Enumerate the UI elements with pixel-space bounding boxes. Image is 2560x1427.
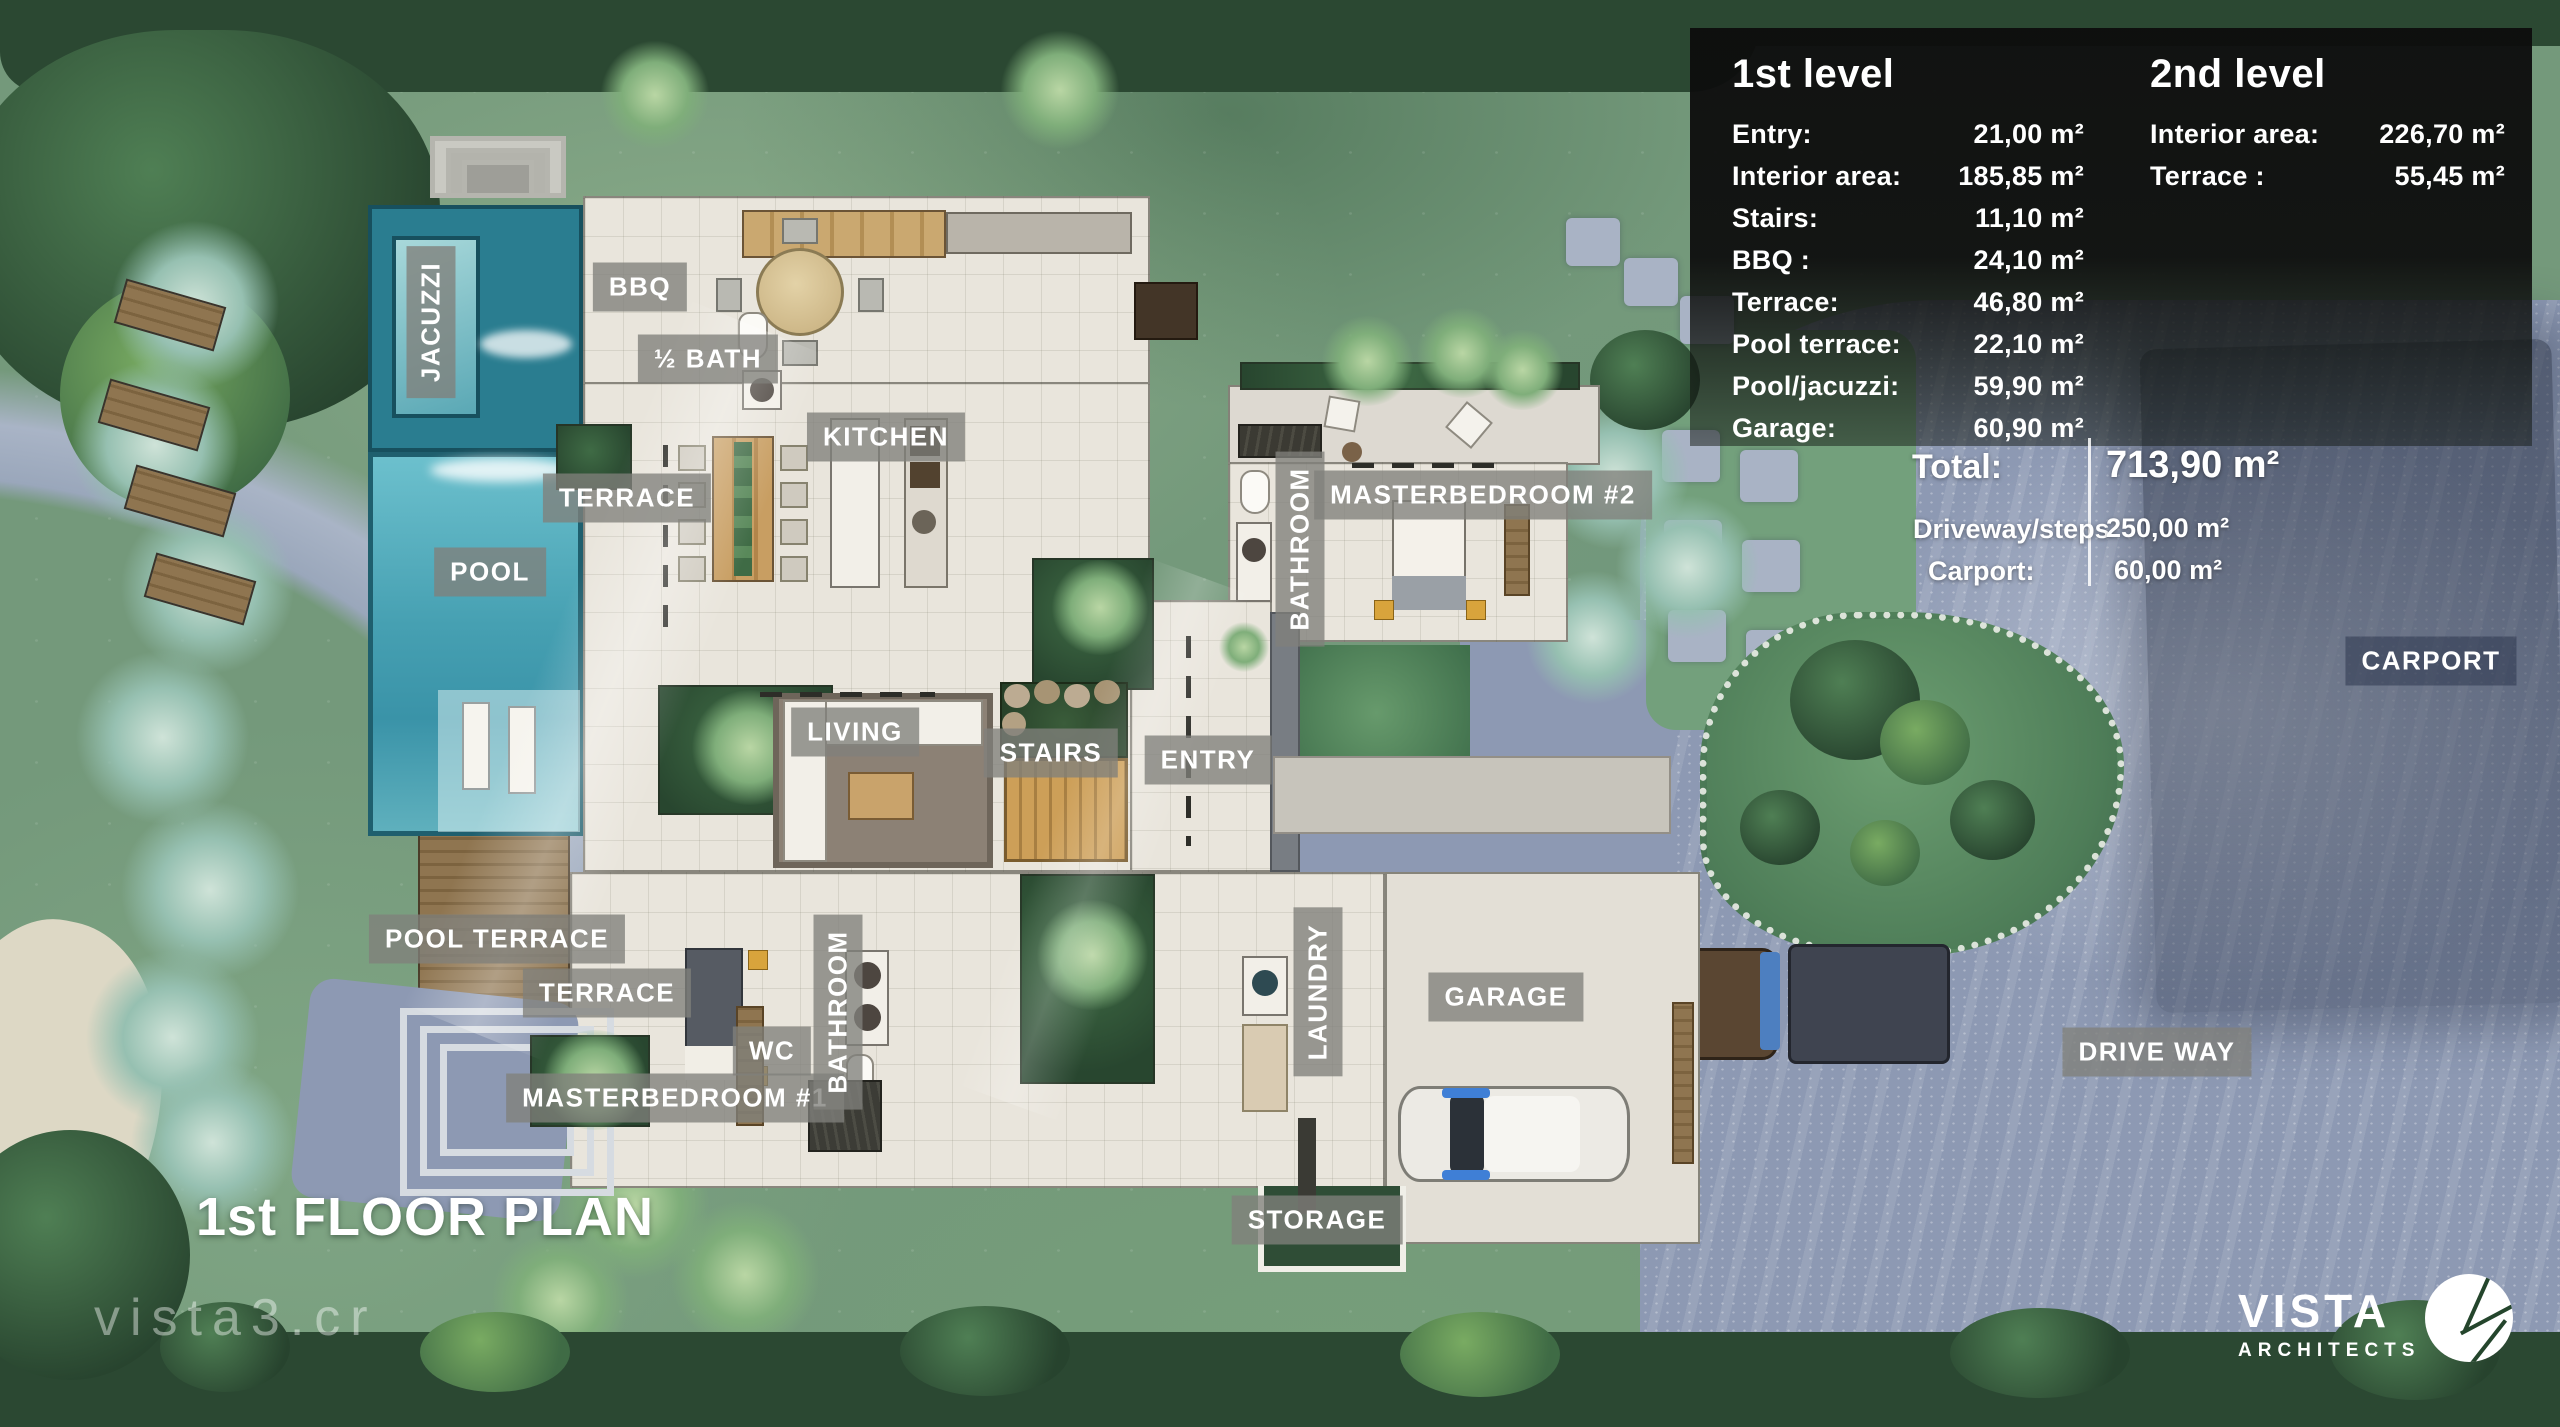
terrace-chair	[1323, 395, 1360, 432]
rock	[1064, 684, 1090, 708]
area-label: Pool/jacuzzi:	[1732, 371, 1899, 402]
area-row: Entry:21,00 m²	[1732, 113, 2084, 155]
rock	[1034, 680, 1060, 704]
room-label-pool-terrace: POOL TERRACE	[369, 915, 625, 964]
area-value: 22,10 m²	[1974, 329, 2084, 360]
hedge-bush	[1400, 1312, 1560, 1397]
area-label: Pool terrace:	[1732, 329, 1901, 360]
room-label-kitchen: KITCHEN	[807, 413, 965, 462]
area-row: Stairs:11,10 m²	[1732, 197, 2084, 239]
round-dining-table	[756, 248, 844, 336]
room-label-drive-way: DRIVE WAY	[2062, 1028, 2251, 1077]
hedge-bush	[1950, 1308, 2130, 1398]
area-value: 46,80 m²	[1974, 287, 2084, 318]
area-row: Terrace :55,45 m²	[2150, 155, 2505, 197]
side-table	[1342, 442, 1362, 462]
area-label: Interior area:	[2150, 119, 2319, 150]
stepping-paver	[1566, 218, 1620, 266]
chair	[780, 556, 808, 582]
total-value: 713,90 m²	[2106, 444, 2279, 487]
room-label-masterbedroom-2: MASTERBEDROOM #2	[1314, 471, 1652, 520]
room-label-half-bath: ½ BATH	[638, 335, 778, 384]
area-label: Entry:	[1732, 119, 1812, 150]
nightstand	[748, 950, 768, 970]
kitchen-sink	[912, 510, 936, 534]
car-glass-accent	[1442, 1088, 1490, 1098]
area-row: Pool terrace:22,10 m²	[1732, 323, 2084, 365]
washer-door	[1252, 970, 1278, 996]
entry-walkway	[1273, 756, 1671, 834]
chair	[716, 278, 742, 312]
island-bush	[1850, 820, 1920, 886]
driveway-steps-value: 250,00 m²	[2106, 513, 2229, 544]
truck-windshield	[1760, 952, 1780, 1050]
area-label: Terrace :	[2150, 161, 2265, 192]
room-label-wc: WC	[733, 1027, 811, 1076]
area-label: Terrace:	[1732, 287, 1839, 318]
car-windshield	[1450, 1094, 1484, 1174]
fern	[1480, 330, 1565, 410]
area-value: 185,85 m²	[1958, 161, 2084, 192]
palm-tree	[1000, 30, 1120, 150]
area-label: Stairs:	[1732, 203, 1818, 234]
sliding-door	[1352, 463, 1512, 468]
area-row: Garage:60,90 m²	[1732, 407, 2084, 449]
bbq-grill	[1134, 282, 1198, 340]
room-label-masterbedroom-1: MASTERBEDROOM #1	[506, 1074, 844, 1123]
vanity	[1236, 522, 1272, 602]
area-label: Garage:	[1732, 413, 1836, 444]
area-value: 11,10 m²	[1975, 203, 2084, 234]
area-value: 55,45 m²	[2395, 161, 2505, 192]
outdoor-sofa	[742, 210, 946, 258]
room-label-laundry: LAUNDRY	[1294, 908, 1343, 1077]
sink-basin	[1242, 538, 1266, 562]
room-label-bbq: BBQ	[593, 263, 687, 312]
area-label: BBQ :	[1732, 245, 1810, 276]
vista-architects-logo: VISTA ARCHITECTS	[2238, 1288, 2420, 1362]
island-bush	[1880, 700, 1970, 785]
area-value: 59,90 m²	[1974, 371, 2084, 402]
bush	[1590, 330, 1700, 430]
island-bush	[1740, 790, 1820, 865]
chair	[782, 218, 818, 244]
room-label-jacuzzi: JACUZZI	[407, 246, 456, 398]
chair	[780, 519, 808, 545]
island-bush	[1950, 780, 2035, 860]
area-row: Interior area:226,70 m²	[2150, 113, 2505, 155]
hedge-bush	[420, 1312, 570, 1392]
level2-column: 2nd level Interior area:226,70 m² Terrac…	[2150, 52, 2505, 197]
level1-column: 1st level Entry:21,00 m² Interior area:1…	[1732, 52, 2084, 449]
rock	[1004, 684, 1030, 708]
room-label-terrace-lower: TERRACE	[523, 969, 691, 1018]
area-value: 226,70 m²	[2379, 119, 2505, 150]
area-row: Pool/jacuzzi:59,90 m²	[1732, 365, 2084, 407]
chair	[858, 278, 884, 312]
level2-title: 2nd level	[2150, 52, 2505, 97]
room-label-storage: STORAGE	[1232, 1196, 1403, 1245]
hedge-bush	[900, 1306, 1070, 1396]
logo-subtitle: ARCHITECTS	[2238, 1340, 2420, 1362]
palm-tree	[670, 1200, 820, 1350]
pickup-truck	[1672, 940, 1948, 1064]
total-divider	[2088, 438, 2091, 586]
car-roof	[1484, 1096, 1580, 1172]
stepping-paver	[1624, 258, 1678, 306]
logo-name: VISTA	[2238, 1288, 2420, 1334]
watermark: vista3.cr	[94, 1288, 378, 1348]
car-glass-accent	[1442, 1170, 1490, 1180]
room-label-carport: CARPORT	[2345, 637, 2516, 686]
room-label-stairs: STAIRS	[984, 729, 1118, 778]
page-title: 1st FLOOR PLAN	[196, 1186, 654, 1248]
vista-logo-mark-icon	[2425, 1274, 2513, 1362]
bbq-counter	[946, 212, 1132, 254]
floor-plan-render: JACUZZI BBQ ½ BATH KITCHEN TERRACE POOL …	[0, 0, 2560, 1427]
carport-area-label: Carport:	[1928, 556, 2035, 587]
room-label-terrace-upper: TERRACE	[543, 474, 711, 523]
fern	[1320, 316, 1415, 406]
chair	[780, 482, 808, 508]
room-label-bathroom-1: BATHROOM	[814, 914, 863, 1109]
palm-tree	[600, 40, 710, 150]
oven	[910, 462, 940, 488]
room-label-living: LIVING	[791, 708, 919, 757]
area-row: BBQ :24,10 m²	[1732, 239, 2084, 281]
stepping-paver	[1740, 450, 1798, 502]
pool-lounger	[462, 702, 490, 790]
bed-blanket	[1392, 576, 1466, 610]
toilet	[1240, 470, 1270, 514]
truck-bed	[1788, 944, 1950, 1064]
top-steps-core	[462, 160, 534, 198]
area-label: Interior area:	[1732, 161, 1901, 192]
water-foam	[480, 330, 572, 358]
area-value: 24,10 m²	[1974, 245, 2084, 276]
area-value: 60,90 m²	[1974, 413, 2084, 444]
nightstand	[1466, 600, 1486, 620]
garage-slab	[1385, 872, 1700, 1244]
sliding-door	[760, 692, 935, 697]
room-label-pool: POOL	[434, 548, 546, 597]
room-label-garage: GARAGE	[1428, 973, 1583, 1022]
palm-tree	[75, 650, 250, 825]
area-row: Terrace:46,80 m²	[1732, 281, 2084, 323]
logo-cut-line	[2460, 1285, 2513, 1335]
level1-title: 1st level	[1732, 52, 2084, 97]
laundry-cabinet	[1242, 1024, 1288, 1112]
garage-car	[1398, 1086, 1630, 1182]
bottom-hedge	[0, 1332, 2560, 1427]
area-summary-panel: 1st level Entry:21,00 m² Interior area:1…	[1690, 28, 2532, 446]
room-label-entry: ENTRY	[1145, 736, 1272, 785]
coffee-table	[848, 772, 914, 820]
total-label: Total:	[1912, 448, 2002, 487]
area-value: 21,00 m²	[1974, 119, 2084, 150]
carport-area-value: 60,00 m²	[2114, 555, 2222, 586]
garage-shelf	[1672, 1002, 1694, 1164]
nightstand	[1374, 600, 1394, 620]
area-row: Interior area:185,85 m²	[1732, 155, 2084, 197]
driveway-steps-label: Driveway/steps	[1913, 514, 2110, 545]
